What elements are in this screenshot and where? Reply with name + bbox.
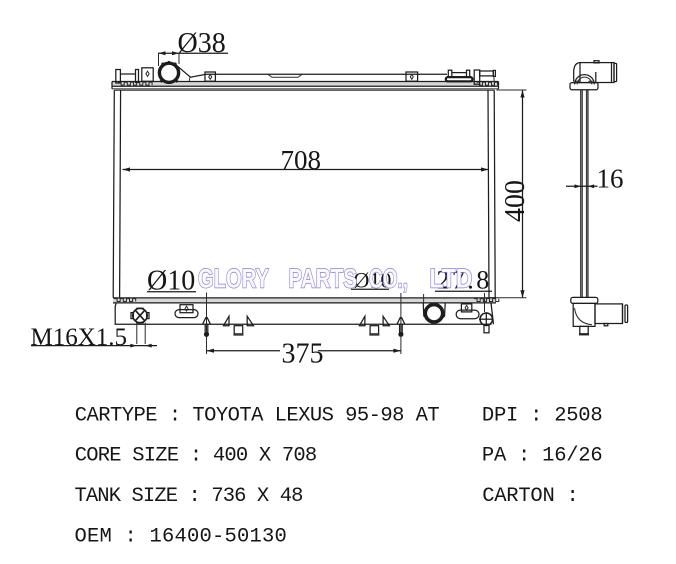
svg-text:PARTS: PARTS — [289, 264, 358, 294]
svg-text:GLORY: GLORY — [198, 264, 269, 294]
svg-text:400: 400 — [500, 180, 531, 222]
svg-text:M16X1.5: M16X1.5 — [31, 324, 128, 351]
svg-text:CO.,: CO., — [369, 264, 408, 294]
svg-text:708: 708 — [281, 145, 322, 175]
svg-text:Ø38: Ø38 — [178, 28, 226, 59]
svg-text:TANK SIZE : 736 X 48: TANK SIZE : 736 X 48 — [75, 485, 303, 508]
svg-text:CARTYPE : TOYOTA LEXUS 95-98 A: CARTYPE : TOYOTA LEXUS 95-98 AT — [75, 405, 440, 428]
svg-text:375: 375 — [282, 339, 324, 370]
svg-text:CARTON :: CARTON : — [482, 485, 578, 508]
svg-text:LTD: LTD — [430, 264, 473, 294]
svg-text:OEM : 16400-50130: OEM : 16400-50130 — [75, 526, 288, 549]
svg-text:DPI : 2508: DPI : 2508 — [482, 405, 603, 428]
svg-text:16: 16 — [597, 164, 624, 194]
svg-text:PA : 16/26: PA : 16/26 — [482, 444, 603, 467]
svg-text:CORE SIZE : 400 X 708: CORE SIZE : 400 X 708 — [75, 444, 317, 467]
